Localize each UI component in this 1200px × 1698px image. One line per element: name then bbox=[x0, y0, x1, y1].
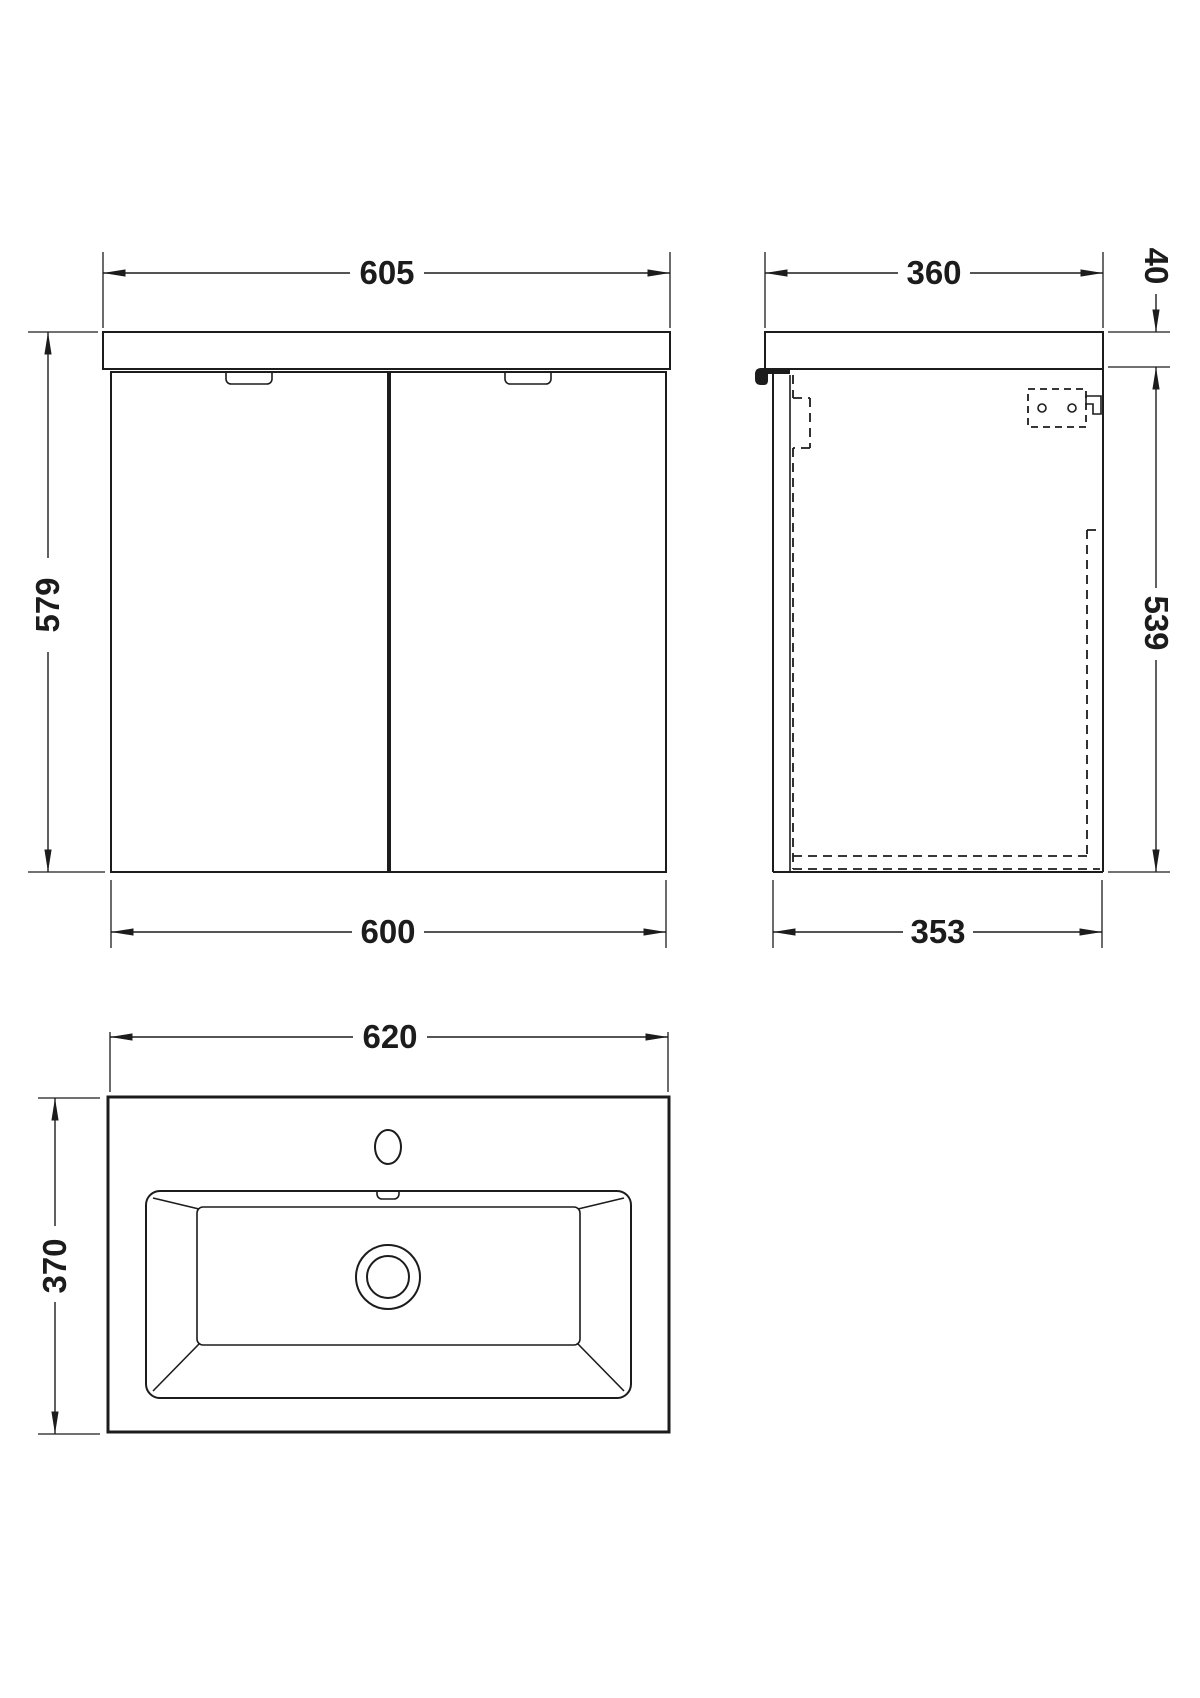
side-view bbox=[755, 332, 1103, 872]
door-handle-recess-left bbox=[226, 372, 272, 384]
basin-bowl-floor bbox=[197, 1207, 580, 1345]
dim-side-worktop-thickness: 40 bbox=[1108, 248, 1175, 367]
dim-label-front-width-top: 605 bbox=[359, 254, 414, 291]
dim-side-depth-bottom: 353 bbox=[773, 880, 1102, 950]
side-hidden-back-panel bbox=[1087, 530, 1103, 856]
dim-label-side-worktop-thickness: 40 bbox=[1138, 248, 1175, 285]
technical-drawing-page: 605 579 600 bbox=[0, 0, 1200, 1698]
dim-label-side-cabinet-height: 539 bbox=[1138, 595, 1175, 650]
side-worktop bbox=[765, 332, 1103, 369]
basin-overflow-slot bbox=[377, 1191, 399, 1199]
bracket-screw-hole-right bbox=[1068, 404, 1076, 412]
front-view bbox=[103, 332, 670, 872]
dim-basin-width: 620 bbox=[110, 1018, 668, 1092]
dim-front-width-bottom: 600 bbox=[111, 880, 666, 950]
dim-label-basin-depth: 370 bbox=[36, 1238, 73, 1293]
dim-side-depth-top: 360 bbox=[765, 252, 1103, 328]
side-hidden-bottom-panel bbox=[793, 856, 1100, 869]
side-wall-bracket bbox=[1028, 389, 1101, 427]
dim-basin-depth: 370 bbox=[36, 1098, 100, 1434]
basin-view bbox=[108, 1097, 669, 1432]
door-handle-recess-right bbox=[505, 372, 551, 384]
bracket-screw-hole-left bbox=[1038, 404, 1046, 412]
dim-front-height: 579 bbox=[28, 332, 105, 872]
basin-outer-edge bbox=[108, 1097, 669, 1432]
dim-label-front-height: 579 bbox=[29, 577, 66, 632]
dim-label-side-depth-bottom: 353 bbox=[910, 913, 965, 950]
dim-label-side-depth-top: 360 bbox=[906, 254, 961, 291]
front-worktop bbox=[103, 332, 670, 369]
basin-waste-outer bbox=[356, 1245, 420, 1309]
vanity-unit-dimension-drawing: 605 579 600 bbox=[0, 0, 1200, 1698]
dim-side-cabinet-height: 539 bbox=[1108, 367, 1175, 872]
bracket-wall-hook bbox=[1086, 396, 1101, 414]
basin-tap-hole bbox=[375, 1130, 401, 1164]
side-hidden-carcass-line bbox=[793, 375, 810, 869]
dim-label-front-width-bottom: 600 bbox=[360, 913, 415, 950]
dim-front-width-top: 605 bbox=[103, 252, 670, 328]
bracket-body-hidden bbox=[1028, 389, 1086, 427]
dim-label-basin-width: 620 bbox=[362, 1018, 417, 1055]
front-door-right bbox=[390, 372, 666, 872]
basin-bowl-rim bbox=[146, 1191, 631, 1398]
basin-bowl-corner-slopes bbox=[153, 1198, 624, 1391]
front-door-left bbox=[111, 372, 388, 872]
basin-waste-inner bbox=[367, 1256, 409, 1298]
